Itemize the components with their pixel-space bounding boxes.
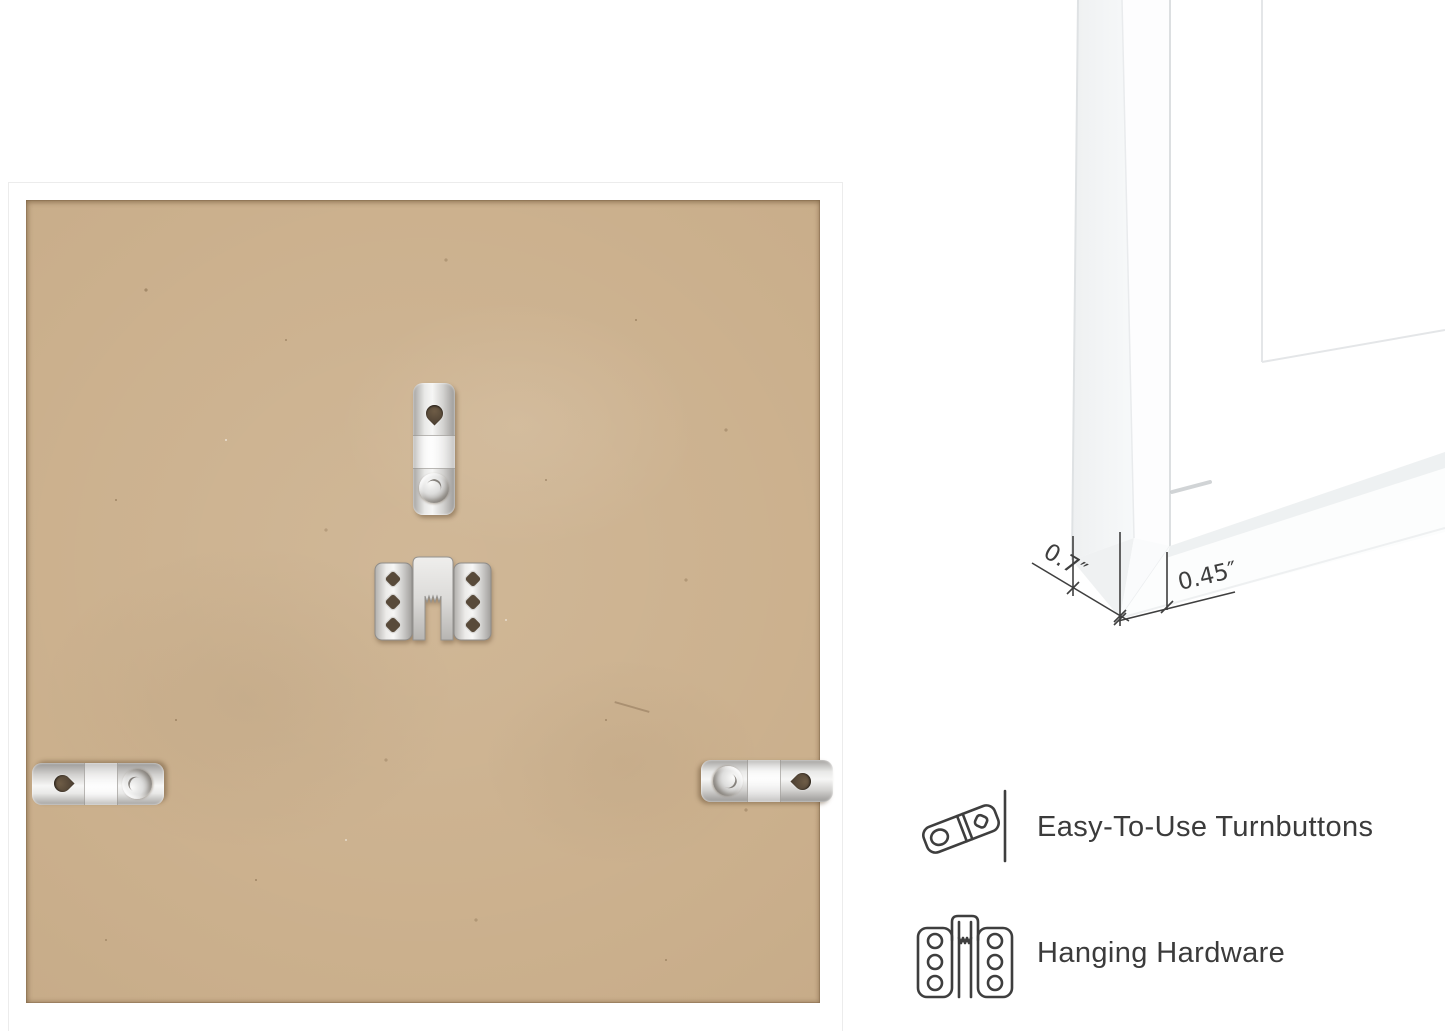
turnbutton-left (32, 763, 164, 805)
feature-label-turnbuttons: Easy-To-Use Turnbuttons (1037, 810, 1373, 844)
metal-strip (413, 383, 455, 515)
metal-band (413, 435, 455, 469)
mat-opening-horizontal-edge (1262, 330, 1445, 362)
hanging-hardware-icon (915, 908, 1015, 1000)
metal-band (84, 763, 118, 805)
teardrop-hole (50, 772, 74, 796)
screw-head (122, 769, 152, 799)
frame-corner-photo: 0.7″ 0.45″ (1030, 0, 1445, 660)
feature-label-hanging-hardware: Hanging Hardware (1037, 936, 1285, 970)
turnbutton-top (413, 383, 455, 515)
teardrop-hole (422, 401, 446, 425)
metal-strip (701, 760, 833, 802)
turnbutton-icon (915, 785, 1015, 870)
product-image: 0.7″ 0.45″ Easy-To-Use Turnbuttons (0, 0, 1445, 1031)
hanger-sawtooth-bridge (413, 557, 453, 640)
sawtooth-hanger (374, 556, 492, 644)
glass-sliver-highlight (1172, 482, 1210, 492)
screw-head (419, 473, 449, 503)
metal-band (747, 760, 781, 802)
turnbutton-right (701, 760, 833, 802)
screw-head (713, 766, 743, 796)
teardrop-hole (790, 769, 814, 793)
frame-back-photo (8, 182, 843, 1031)
metal-strip (32, 763, 164, 805)
